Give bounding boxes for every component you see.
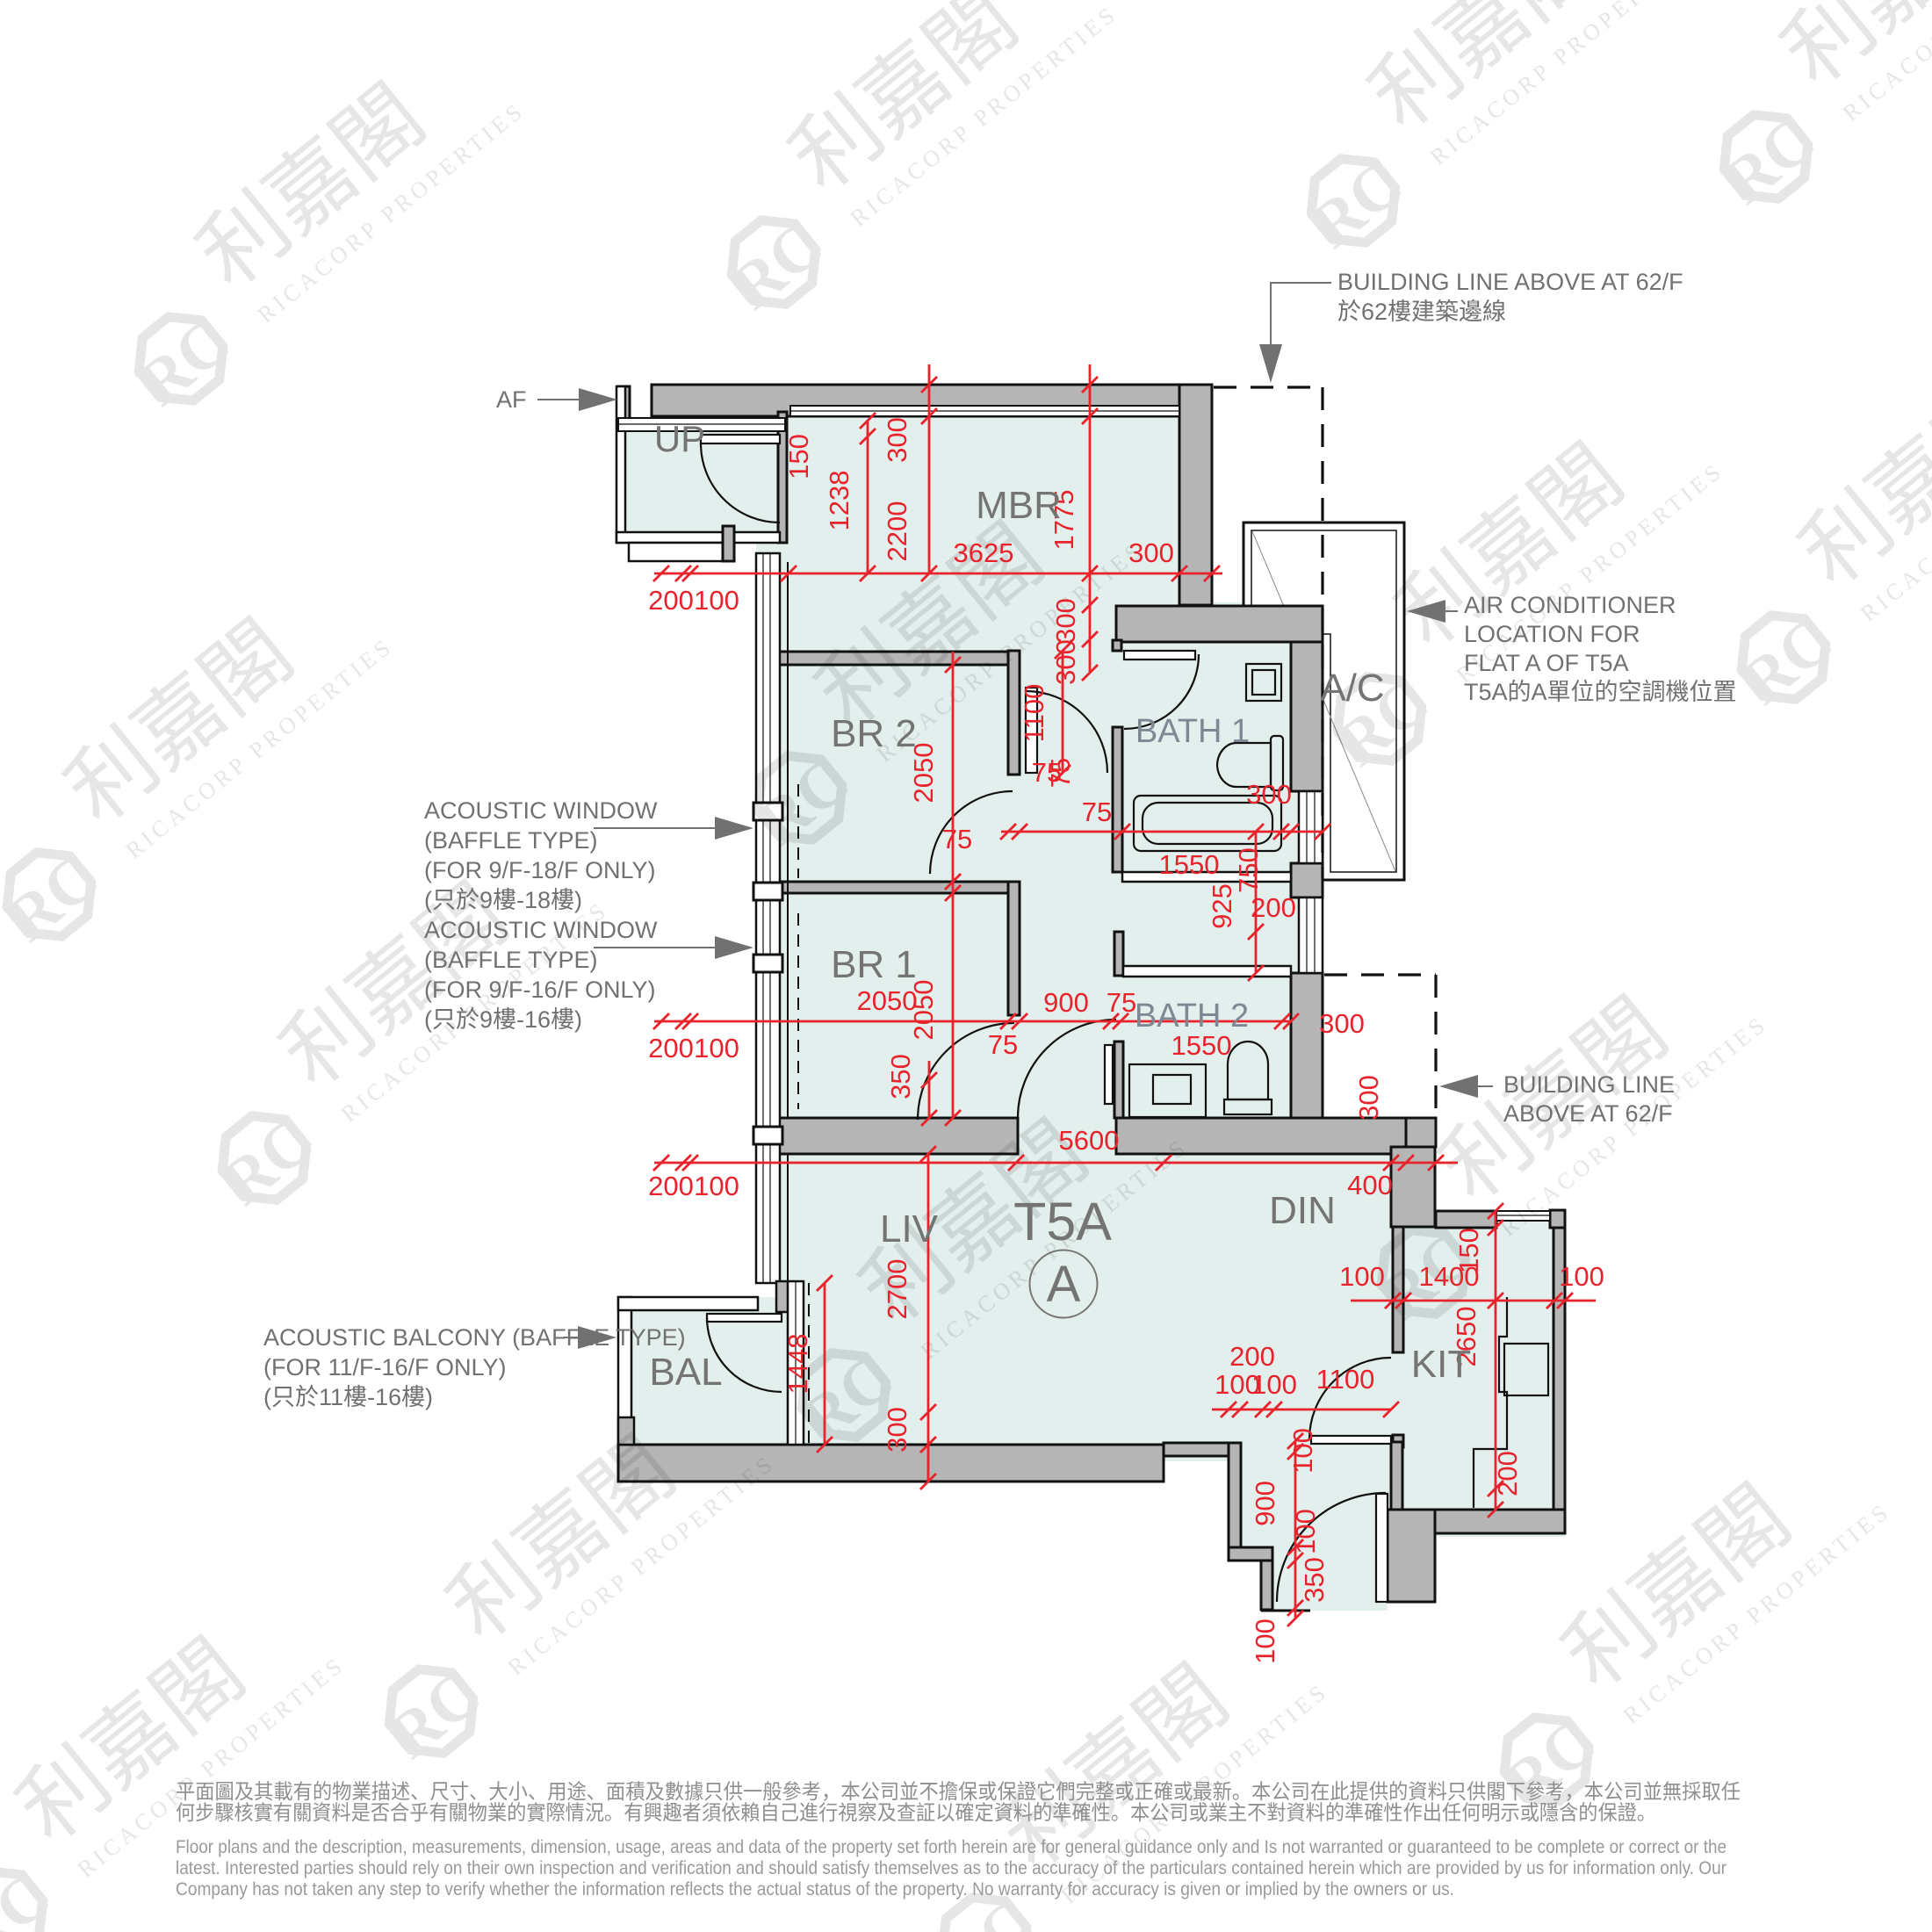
svg-text:1100: 1100 <box>1019 684 1049 743</box>
svg-text:(FOR 9/F-18/F ONLY): (FOR 9/F-18/F ONLY) <box>424 857 656 883</box>
svg-text:Floor plans and the descriptio: Floor plans and the description, measure… <box>176 1837 1727 1857</box>
svg-text:400: 400 <box>1347 1170 1393 1200</box>
svg-text:1550: 1550 <box>1171 1030 1232 1061</box>
svg-text:MBR: MBR <box>976 484 1062 527</box>
svg-text:ACOUSTIC BALCONY (BAFFLE TYPE): ACOUSTIC BALCONY (BAFFLE TYPE) <box>263 1324 686 1351</box>
svg-text:BAL: BAL <box>649 1351 722 1394</box>
svg-text:100: 100 <box>1287 1428 1318 1474</box>
svg-text:UP: UP <box>654 418 705 459</box>
svg-text:BATH 1: BATH 1 <box>1135 713 1250 750</box>
svg-text:2050: 2050 <box>908 980 939 1041</box>
svg-text:1400: 1400 <box>1419 1261 1480 1292</box>
svg-text:2700: 2700 <box>882 1259 912 1320</box>
svg-text:900: 900 <box>1250 1481 1280 1526</box>
svg-text:100: 100 <box>1250 1618 1280 1664</box>
svg-text:75: 75 <box>988 1029 1018 1060</box>
svg-text:BR 2: BR 2 <box>831 712 917 755</box>
svg-text:(BAFFLE TYPE): (BAFFLE TYPE) <box>424 827 598 854</box>
svg-text:A/C: A/C <box>1320 667 1384 710</box>
svg-text:2200: 2200 <box>882 501 912 562</box>
svg-text:200: 200 <box>1492 1451 1523 1496</box>
svg-text:BATH 2: BATH 2 <box>1135 998 1249 1034</box>
svg-text:100: 100 <box>694 1033 739 1063</box>
svg-text:1550: 1550 <box>1159 849 1220 880</box>
svg-text:FLAT A OF T5A: FLAT A OF T5A <box>1464 650 1629 676</box>
svg-text:925: 925 <box>1207 883 1237 929</box>
svg-text:AF: AF <box>496 386 527 413</box>
svg-text:300: 300 <box>1319 1008 1365 1039</box>
svg-text:100: 100 <box>1559 1261 1604 1292</box>
svg-text:300: 300 <box>882 1407 912 1453</box>
svg-text:ABOVE AT 62/F: ABOVE AT 62/F <box>1503 1100 1673 1127</box>
svg-text:5600: 5600 <box>1059 1125 1120 1156</box>
svg-text:150: 150 <box>783 434 814 479</box>
svg-text:350: 350 <box>1299 1557 1330 1603</box>
svg-text:BUILDING LINE: BUILDING LINE <box>1503 1071 1675 1098</box>
svg-text:(FOR 9/F-16/F ONLY): (FOR 9/F-16/F ONLY) <box>424 977 656 1003</box>
svg-text:75: 75 <box>1107 987 1136 1018</box>
svg-text:(FOR 11/F-16/F ONLY): (FOR 11/F-16/F ONLY) <box>263 1354 507 1381</box>
svg-text:T5A: T5A <box>1013 1192 1112 1251</box>
svg-text:A: A <box>1047 1256 1081 1313</box>
svg-text:平面圖及其載有的物業描述、尺寸、大小、用途、面積及數據只供一: 平面圖及其載有的物業描述、尺寸、大小、用途、面積及數據只供一般參考，本公司並不擔… <box>176 1780 1741 1803</box>
svg-text:AIR CONDITIONER: AIR CONDITIONER <box>1464 592 1676 618</box>
svg-text:1100: 1100 <box>1316 1364 1375 1395</box>
svg-text:750: 750 <box>1233 847 1264 893</box>
svg-text:100: 100 <box>1339 1261 1385 1292</box>
svg-text:200: 200 <box>648 1171 694 1201</box>
svg-text:ACOUSTIC WINDOW: ACOUSTIC WINDOW <box>424 917 658 943</box>
svg-text:(BAFFLE TYPE): (BAFFLE TYPE) <box>424 947 598 973</box>
svg-text:300: 300 <box>1128 537 1174 568</box>
svg-text:200: 200 <box>1229 1341 1275 1372</box>
svg-text:1448: 1448 <box>782 1334 813 1395</box>
svg-text:300: 300 <box>1353 1075 1384 1121</box>
svg-text:於62樓建築邊線: 於62樓建築邊線 <box>1337 299 1506 325</box>
svg-text:1238: 1238 <box>824 471 854 531</box>
svg-text:3625: 3625 <box>954 537 1014 568</box>
svg-text:200: 200 <box>648 1033 694 1063</box>
svg-text:100: 100 <box>694 1171 739 1201</box>
svg-text:300: 300 <box>882 417 912 463</box>
svg-text:75: 75 <box>1082 797 1112 827</box>
svg-text:Company has not taken any step: Company has not taken any step to verify… <box>176 1879 1454 1900</box>
svg-text:(只於9樓-16樓): (只於9樓-16樓) <box>424 1006 582 1033</box>
svg-text:300: 300 <box>1050 639 1081 685</box>
svg-text:100: 100 <box>1290 1509 1321 1554</box>
svg-text:LIV: LIV <box>880 1207 939 1251</box>
svg-text:100: 100 <box>694 585 739 616</box>
svg-text:BR 1: BR 1 <box>831 943 917 986</box>
svg-text:900: 900 <box>1043 987 1089 1018</box>
svg-text:KIT: KIT <box>1411 1343 1471 1386</box>
svg-text:350: 350 <box>885 1054 916 1099</box>
svg-text:200: 200 <box>1251 892 1296 923</box>
svg-text:DIN: DIN <box>1269 1189 1336 1232</box>
svg-text:latest. Interested parties sho: latest. Interested parties should rely o… <box>176 1858 1727 1878</box>
svg-text:(只於9樓-18樓): (只於9樓-18樓) <box>424 887 582 913</box>
svg-text:75: 75 <box>1045 758 1076 788</box>
svg-text:100: 100 <box>1251 1369 1297 1400</box>
svg-text:BUILDING LINE ABOVE AT 62/F: BUILDING LINE ABOVE AT 62/F <box>1337 269 1683 295</box>
svg-text:300: 300 <box>1050 598 1081 644</box>
svg-text:200: 200 <box>648 585 694 616</box>
svg-text:T5A的A單位的空調機位置: T5A的A單位的空調機位置 <box>1464 679 1737 705</box>
svg-text:LOCATION FOR: LOCATION FOR <box>1464 621 1640 647</box>
svg-text:ACOUSTIC WINDOW: ACOUSTIC WINDOW <box>424 797 658 824</box>
svg-text:何步驟核實有關資料是否合乎有關物業的實際情況。有興趣者須依賴: 何步驟核實有關資料是否合乎有關物業的實際情況。有興趣者須依賴自己進行視察及查証以… <box>176 1801 1656 1824</box>
svg-text:300: 300 <box>1246 779 1292 810</box>
svg-text:(只於11樓-16樓): (只於11樓-16樓) <box>263 1384 433 1410</box>
svg-text:75: 75 <box>942 824 972 854</box>
